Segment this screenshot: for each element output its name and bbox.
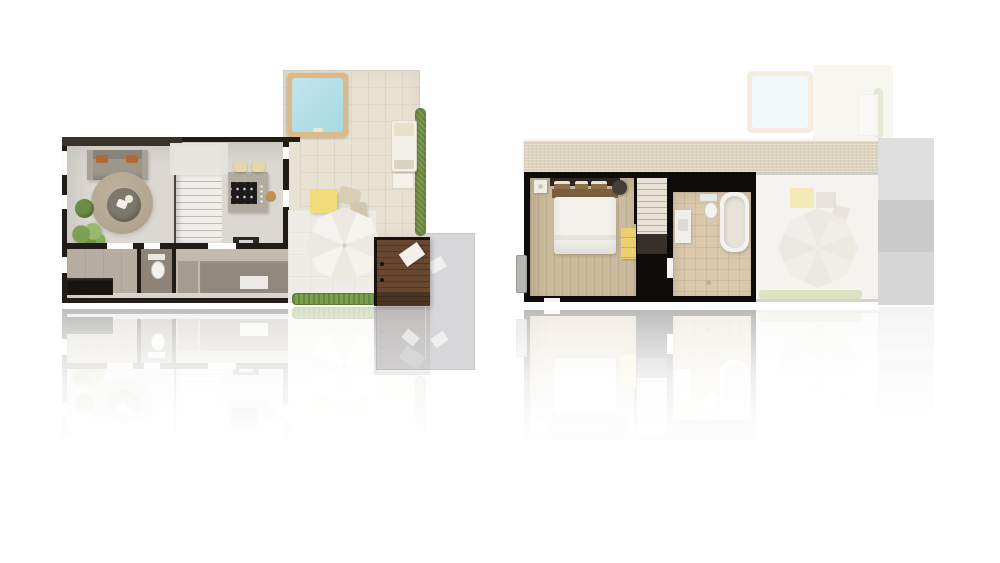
terrace-sliver <box>288 142 300 214</box>
ghost-parasol <box>778 208 858 288</box>
window-gap-1 <box>62 151 67 175</box>
bar-stool-2 <box>252 162 265 172</box>
house-walls <box>62 137 300 303</box>
closet-band <box>178 261 198 293</box>
ghost-pool <box>747 71 813 133</box>
patio-door-gap <box>283 190 289 207</box>
dresser-yellow <box>621 228 636 259</box>
gray-patch-light <box>878 138 934 200</box>
upper-floor-plan <box>516 60 940 305</box>
terrace-door-gap <box>283 147 289 159</box>
deck-step <box>377 292 430 306</box>
door-handle-dot-2 <box>380 278 384 282</box>
gray-side-volume <box>878 138 934 305</box>
ghost-lounger <box>858 94 878 136</box>
upper-walls <box>524 172 756 302</box>
door-handle-dot-1 <box>380 262 384 266</box>
stair-void-dark <box>637 234 667 254</box>
ghost-table-yellow <box>790 188 814 208</box>
sink <box>678 219 688 231</box>
ghost-grass <box>759 290 862 299</box>
bathtub <box>720 192 749 252</box>
stairs-landing <box>174 146 220 176</box>
bottom-door-gap <box>544 298 560 302</box>
vanity <box>675 210 691 243</box>
copper-pan <box>266 191 276 201</box>
toilet-tank-upper <box>700 194 717 201</box>
ghost-wall-top <box>756 172 878 175</box>
nightstand <box>534 180 547 193</box>
window-marker-ext <box>516 255 527 293</box>
utility-counter <box>67 278 113 295</box>
gray-patch-dark <box>878 200 934 252</box>
sun-lounger <box>391 120 417 172</box>
bathtub-basin <box>724 196 745 248</box>
driveway-mark-2 <box>401 328 420 346</box>
floor-plans-canvas <box>0 0 1000 563</box>
sofa-arm-right <box>142 150 148 180</box>
island-knobs <box>259 184 264 203</box>
storage-mat <box>240 276 268 289</box>
cooktop <box>231 182 257 204</box>
sofa-pillow-right <box>126 155 138 163</box>
grass-strip <box>292 293 376 305</box>
pool-ladder <box>313 128 323 132</box>
ground-floor-plan <box>55 60 475 305</box>
staircase <box>174 175 222 243</box>
toilet-bowl-upper <box>704 202 718 219</box>
plunge-pool <box>287 73 348 137</box>
void-ghost <box>756 172 878 302</box>
reflection-fade-right <box>516 307 940 552</box>
upper-floor-reflection <box>516 307 940 552</box>
parasol-hub <box>342 243 347 248</box>
ghost-pool-water <box>752 76 808 128</box>
lounger-side-table <box>392 173 414 189</box>
table-bowl <box>125 195 133 203</box>
sofa-pillow-left <box>96 155 108 163</box>
lounger-back <box>394 123 414 136</box>
shower-drain <box>706 280 711 285</box>
toilet-tank <box>148 254 165 260</box>
outdoor-table-yellow <box>310 190 337 213</box>
duvet <box>554 197 616 254</box>
lamp-dot <box>538 184 543 189</box>
window-gap-2 <box>62 195 67 209</box>
ghost-group <box>516 60 940 150</box>
top-wall-brown <box>62 137 182 146</box>
kitchen-island <box>228 172 268 212</box>
toilet-bowl <box>151 261 165 279</box>
bedroom-armchair <box>612 180 627 195</box>
sofa-arm-left <box>87 150 93 180</box>
coffee-table <box>107 188 141 222</box>
window-gap-3 <box>62 257 67 273</box>
pool-water <box>292 78 343 132</box>
bar-stool-1 <box>234 162 247 172</box>
pouf <box>75 199 94 218</box>
lounger-foot <box>394 160 414 169</box>
doormat <box>399 242 426 267</box>
driveway-mark-3 <box>430 331 449 349</box>
ghost-wall-bottom <box>756 299 878 302</box>
duvet-fold <box>554 235 616 240</box>
entrance-deck <box>374 237 430 306</box>
